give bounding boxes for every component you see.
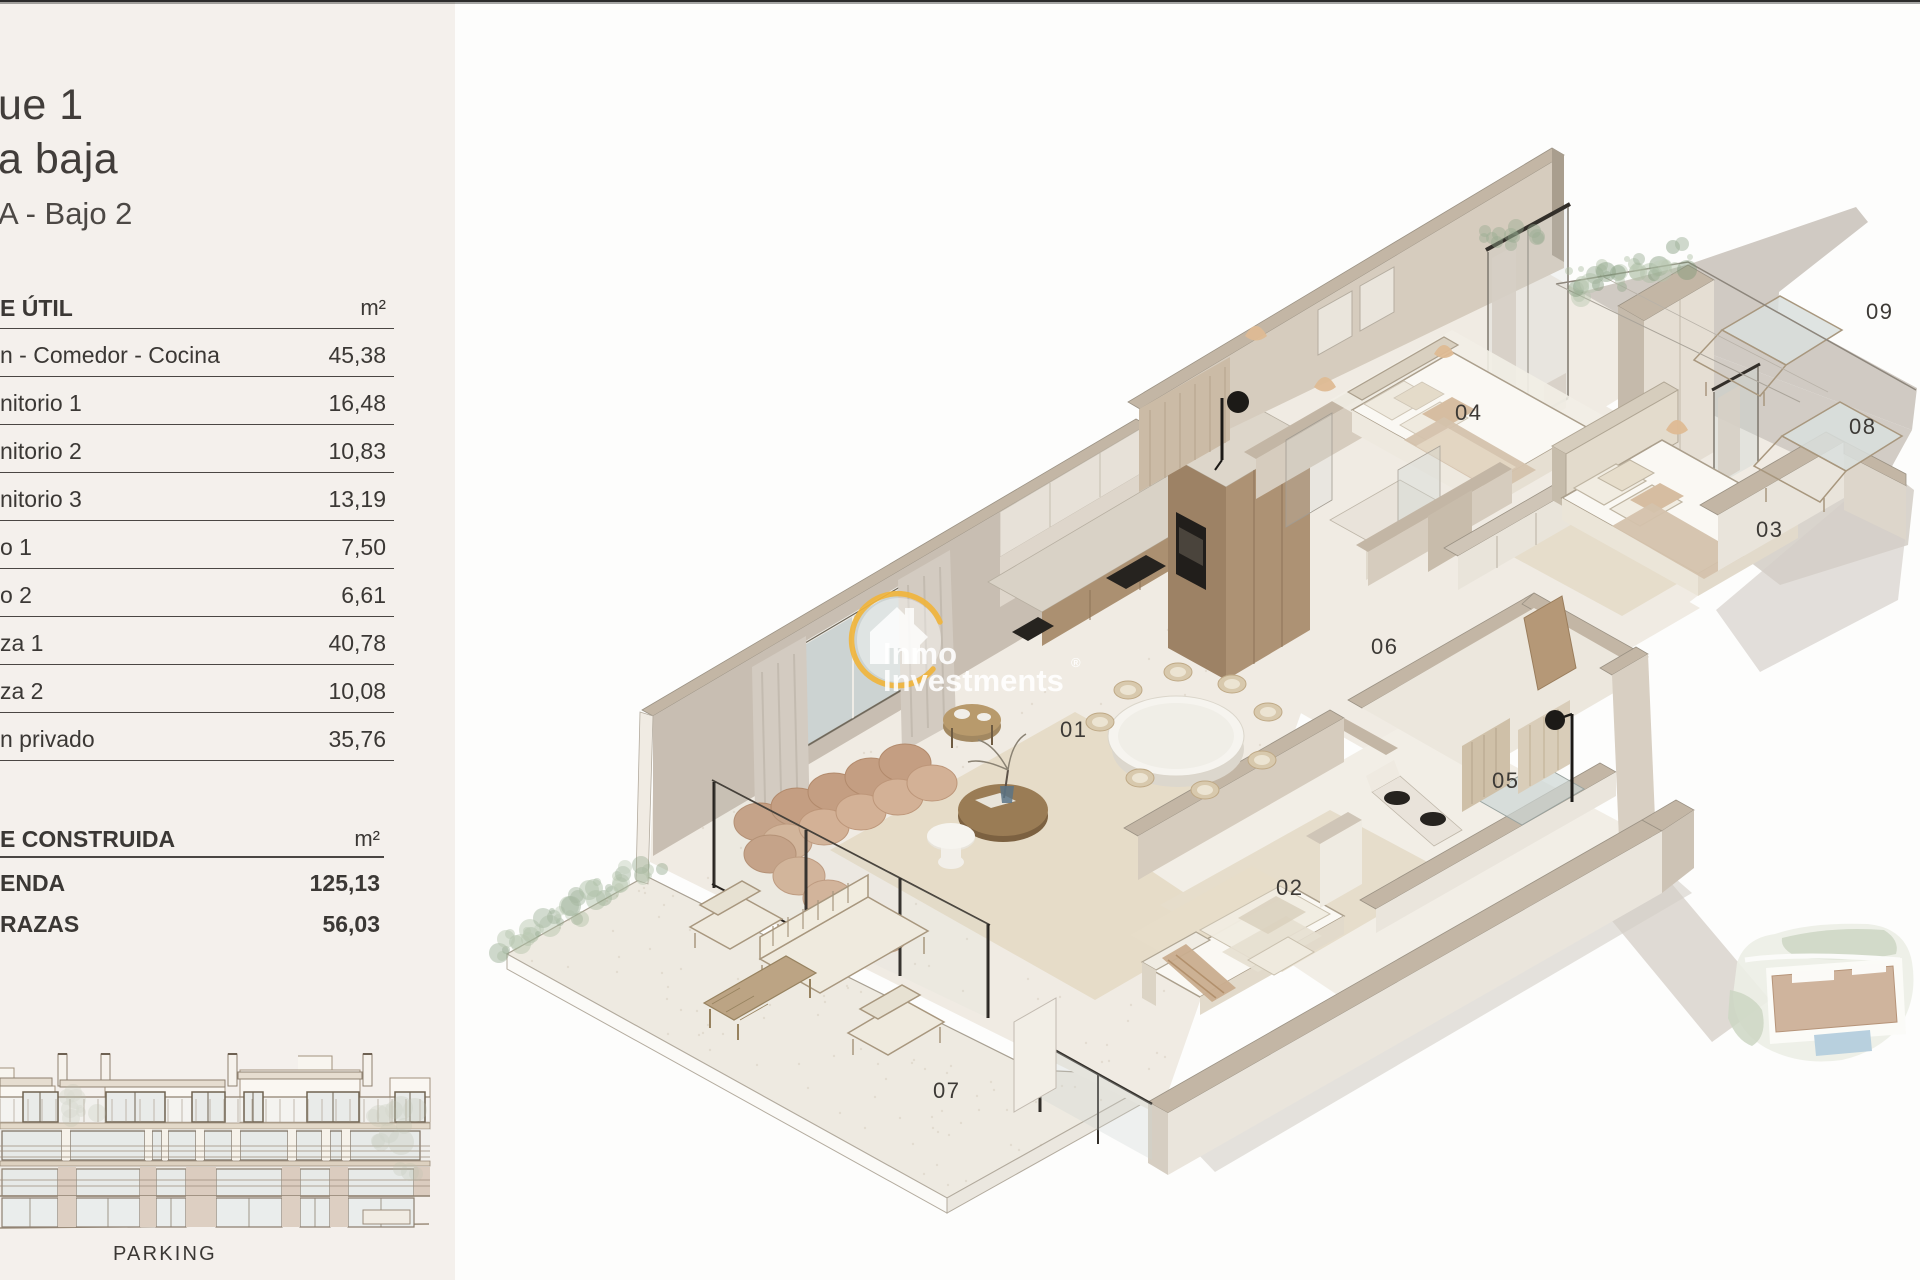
svg-text:06: 06 bbox=[1371, 634, 1398, 659]
svg-text:07: 07 bbox=[933, 1078, 960, 1103]
svg-text:05: 05 bbox=[1492, 768, 1519, 793]
svg-text:Investments: Investments bbox=[883, 663, 1064, 698]
svg-text:01: 01 bbox=[1060, 717, 1087, 742]
svg-text:03: 03 bbox=[1756, 517, 1783, 542]
svg-text:08: 08 bbox=[1849, 414, 1876, 439]
svg-text:04: 04 bbox=[1455, 400, 1482, 425]
svg-text:02: 02 bbox=[1276, 875, 1303, 900]
svg-text:®: ® bbox=[1071, 655, 1081, 670]
svg-text:09: 09 bbox=[1866, 299, 1893, 324]
